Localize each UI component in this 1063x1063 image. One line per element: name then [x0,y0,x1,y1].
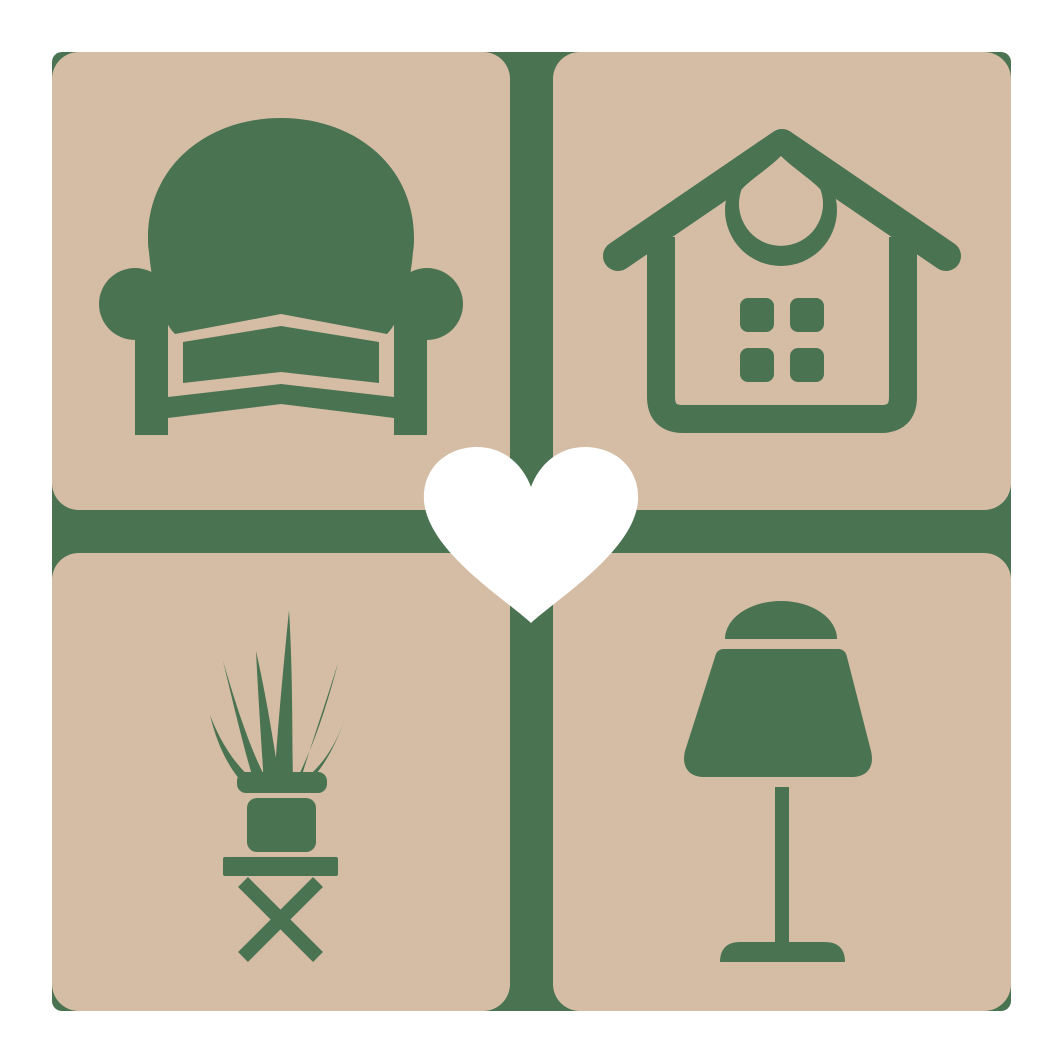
tile-house [553,52,1011,510]
armchair-icon [52,52,510,510]
tile-plant [52,553,510,1011]
tile-armchair [52,52,510,510]
potted-plant-icon [52,553,510,1011]
house-icon [553,52,1011,510]
logo-canvas [0,0,1063,1063]
table-lamp-icon [553,553,1011,1011]
tile-lamp [553,553,1011,1011]
